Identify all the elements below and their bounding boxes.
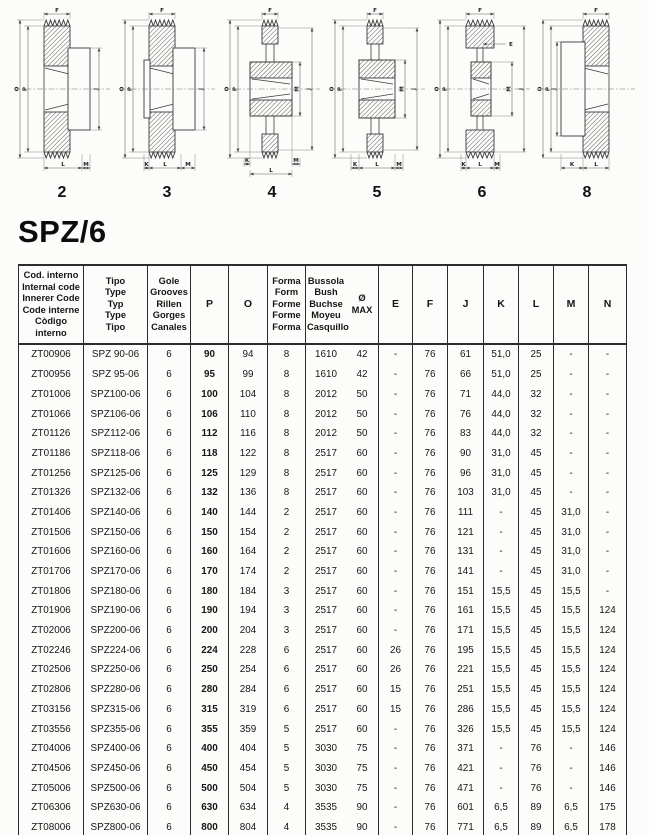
- table-cell: -: [379, 818, 413, 835]
- table-cell: 630: [191, 798, 229, 818]
- table-cell: 118: [191, 444, 229, 464]
- table-cell: 2517: [306, 444, 346, 464]
- table-cell: 6: [148, 483, 191, 503]
- table-cell: 15,5: [484, 699, 519, 719]
- table-cell: 15,5: [484, 680, 519, 700]
- table-cell: 76: [413, 798, 448, 818]
- table-cell: SPZ118-06: [84, 444, 148, 464]
- table-cell: -: [589, 522, 626, 542]
- table-cell: 76: [413, 503, 448, 523]
- table-cell: 6: [148, 798, 191, 818]
- table-cell: SPZ180-06: [84, 581, 148, 601]
- table-cell: -: [379, 345, 413, 365]
- table-cell: 71: [448, 384, 484, 404]
- table-cell: 2517: [306, 463, 346, 483]
- table-cell: 2517: [306, 601, 346, 621]
- table-row: ZT01706SPZ170-0661701742251760-76141-453…: [19, 562, 626, 582]
- table-cell: -: [379, 778, 413, 798]
- table-cell: 6: [148, 522, 191, 542]
- table-cell: -: [484, 503, 519, 523]
- table-cell: -: [589, 562, 626, 582]
- table-cell: 2517: [306, 503, 346, 523]
- pulley-cross-section-form-8: FOPJKL: [535, 4, 639, 180]
- table-cell: ZT01066: [19, 404, 84, 424]
- table-cell: 228: [229, 640, 268, 660]
- table-cell: 2517: [306, 581, 346, 601]
- table-cell: 124: [589, 719, 626, 739]
- table-cell: ZT02806: [19, 680, 84, 700]
- table-cell: 96: [448, 463, 484, 483]
- table-row: ZT01066SPZ106-0661061108201250-767644,03…: [19, 404, 626, 424]
- table-cell: ZT04506: [19, 759, 84, 779]
- table-cell: -: [484, 778, 519, 798]
- svg-text:L: L: [269, 168, 273, 174]
- table-cell: 254: [229, 660, 268, 680]
- column-header: F: [413, 266, 448, 345]
- table-cell: -: [379, 365, 413, 385]
- table-cell: 132: [191, 483, 229, 503]
- table-cell: 60: [346, 522, 379, 542]
- table-cell: 112: [191, 424, 229, 444]
- table-cell: -: [379, 503, 413, 523]
- table-cell: 6: [148, 345, 191, 365]
- svg-text:M: M: [185, 162, 191, 168]
- table-cell: 6: [148, 424, 191, 444]
- table-cell: 76: [413, 680, 448, 700]
- table-cell: 76: [413, 522, 448, 542]
- table-cell: SPZ150-06: [84, 522, 148, 542]
- table-cell: 3: [268, 621, 306, 641]
- table-cell: 31,0: [554, 542, 589, 562]
- table-row: ZT03556SPZ355-0663553595251760-7632615,5…: [19, 719, 626, 739]
- table-cell: 76: [413, 759, 448, 779]
- table-cell: SPZ800-06: [84, 818, 148, 835]
- table-cell: -: [589, 424, 626, 444]
- form-number-label: 5: [325, 184, 429, 202]
- table-cell: -: [589, 483, 626, 503]
- table-cell: SPZ250-06: [84, 660, 148, 680]
- table-cell: 60: [346, 503, 379, 523]
- table-cell: 6: [148, 680, 191, 700]
- table-cell: ZT01256: [19, 463, 84, 483]
- table-cell: 76: [413, 365, 448, 385]
- table-cell: 44,0: [484, 424, 519, 444]
- spec-table: Cod. interno Internal code Innerer Code …: [18, 264, 627, 835]
- table-cell: ZT01126: [19, 424, 84, 444]
- table-cell: 76: [413, 424, 448, 444]
- column-header: Gole Grooves Rillen Gorges Canales: [148, 266, 191, 345]
- table-row: ZT01906SPZ190-0661901943251760-7616115,5…: [19, 601, 626, 621]
- table-cell: 400: [191, 739, 229, 759]
- table-cell: 76: [413, 384, 448, 404]
- table-cell: 144: [229, 503, 268, 523]
- table-cell: 106: [191, 404, 229, 424]
- table-cell: 454: [229, 759, 268, 779]
- table-cell: 110: [229, 404, 268, 424]
- table-cell: 129: [229, 463, 268, 483]
- table-cell: ZT03556: [19, 719, 84, 739]
- table-cell: 6,5: [484, 818, 519, 835]
- table-cell: 60: [346, 444, 379, 464]
- table-cell: 6: [148, 404, 191, 424]
- table-cell: 45: [519, 719, 554, 739]
- table-cell: ZT06306: [19, 798, 84, 818]
- table-cell: 45: [519, 463, 554, 483]
- table-cell: 355: [191, 719, 229, 739]
- table-cell: -: [379, 542, 413, 562]
- table-cell: 5: [268, 759, 306, 779]
- table-cell: 4: [268, 818, 306, 835]
- table-row: ZT01186SPZ118-0661181228251760-769031,04…: [19, 444, 626, 464]
- column-header: J: [448, 266, 484, 345]
- table-cell: 421: [448, 759, 484, 779]
- table-cell: 6,5: [484, 798, 519, 818]
- table-cell: 8: [268, 483, 306, 503]
- pulley-cross-section-form-4: FOPMJKML: [220, 4, 324, 180]
- table-cell: 42: [346, 345, 379, 365]
- table-cell: 151: [448, 581, 484, 601]
- table-cell: 3030: [306, 759, 346, 779]
- table-cell: 6: [148, 699, 191, 719]
- table-cell: 90: [346, 818, 379, 835]
- table-cell: 42: [346, 365, 379, 385]
- table-cell: 15,5: [484, 621, 519, 641]
- svg-text:M: M: [293, 158, 299, 164]
- table-cell: 25: [519, 345, 554, 365]
- column-header: M: [554, 266, 589, 345]
- table-cell: -: [379, 483, 413, 503]
- column-header: Bussola Bush Buchse Moyeu Casquillo: [306, 266, 346, 345]
- table-cell: 76: [413, 601, 448, 621]
- table-cell: 6: [268, 640, 306, 660]
- table-row: ZT01006SPZ100-0661001048201250-767144,03…: [19, 384, 626, 404]
- table-cell: SPZ 90-06: [84, 345, 148, 365]
- table-cell: 124: [589, 680, 626, 700]
- table-cell: 6: [148, 621, 191, 641]
- table-cell: -: [379, 562, 413, 582]
- svg-text:F: F: [55, 8, 59, 14]
- table-cell: 75: [346, 759, 379, 779]
- table-cell: 1610: [306, 365, 346, 385]
- table-cell: 44,0: [484, 384, 519, 404]
- table-cell: 184: [229, 581, 268, 601]
- table-cell: 2: [268, 542, 306, 562]
- table-cell: 250: [191, 660, 229, 680]
- table-cell: 3030: [306, 739, 346, 759]
- table-cell: 2517: [306, 562, 346, 582]
- column-header: O: [229, 266, 268, 345]
- table-cell: 15,5: [484, 601, 519, 621]
- table-cell: -: [589, 581, 626, 601]
- pulley-form-diagram: FOPMJKLM5: [325, 4, 429, 202]
- svg-text:M: M: [396, 162, 402, 168]
- table-cell: 6: [148, 562, 191, 582]
- pulley-form-diagram-strip: FOPJLM2FOPJKLM3FOPMJKML4FOPMJKLM5FOPEMJK…: [0, 0, 649, 202]
- table-cell: SPZ315-06: [84, 699, 148, 719]
- table-cell: 76: [413, 463, 448, 483]
- table-cell: 8: [268, 384, 306, 404]
- table-cell: 90: [346, 798, 379, 818]
- pulley-form-diagram: FOPJLM2: [10, 4, 114, 202]
- svg-text:K: K: [570, 162, 575, 168]
- table-row: ZT01326SPZ132-0661321368251760-7610331,0…: [19, 483, 626, 503]
- table-cell: 450: [191, 759, 229, 779]
- table-cell: 32: [519, 424, 554, 444]
- table-row: ZT01506SPZ150-0661501542251760-76121-453…: [19, 522, 626, 542]
- table-cell: 15,5: [484, 640, 519, 660]
- table-cell: -: [589, 503, 626, 523]
- table-cell: 2517: [306, 680, 346, 700]
- table-cell: -: [554, 483, 589, 503]
- svg-text:L: L: [375, 162, 379, 168]
- table-cell: 2: [268, 522, 306, 542]
- table-cell: 60: [346, 463, 379, 483]
- table-row: ZT02506SPZ250-0662502546251760267622115,…: [19, 660, 626, 680]
- svg-text:K: K: [144, 162, 149, 168]
- table-cell: 75: [346, 739, 379, 759]
- table-row: ZT03156SPZ315-0663153196251760157628615,…: [19, 699, 626, 719]
- table-cell: 61: [448, 345, 484, 365]
- table-cell: 32: [519, 384, 554, 404]
- table-cell: 124: [589, 621, 626, 641]
- table-cell: -: [379, 601, 413, 621]
- table-cell: ZT01606: [19, 542, 84, 562]
- table-cell: 60: [346, 640, 379, 660]
- table-cell: 26: [379, 640, 413, 660]
- table-row: ZT00906SPZ 90-06690948161042-766151,025-…: [19, 345, 626, 365]
- table-cell: 6: [148, 818, 191, 835]
- table-row: ZT02246SPZ224-0662242286251760267619515,…: [19, 640, 626, 660]
- table-cell: 76: [519, 739, 554, 759]
- table-cell: -: [589, 365, 626, 385]
- table-cell: SPZ224-06: [84, 640, 148, 660]
- table-cell: 111: [448, 503, 484, 523]
- table-cell: 76: [448, 404, 484, 424]
- table-cell: -: [554, 759, 589, 779]
- table-cell: 178: [589, 818, 626, 835]
- table-cell: -: [554, 404, 589, 424]
- table-cell: 2517: [306, 542, 346, 562]
- form-number-label: 8: [535, 184, 639, 202]
- table-cell: 771: [448, 818, 484, 835]
- table-cell: 284: [229, 680, 268, 700]
- svg-text:L: L: [61, 162, 65, 168]
- table-cell: 15,5: [554, 621, 589, 641]
- table-cell: 76: [413, 542, 448, 562]
- table-cell: 15: [379, 699, 413, 719]
- table-cell: 504: [229, 778, 268, 798]
- table-cell: 326: [448, 719, 484, 739]
- table-cell: 76: [413, 719, 448, 739]
- table-cell: 6: [148, 759, 191, 779]
- table-cell: 99: [229, 365, 268, 385]
- table-cell: ZT00906: [19, 345, 84, 365]
- column-header: L: [519, 266, 554, 345]
- column-header: Cod. interno Internal code Innerer Code …: [19, 266, 84, 345]
- table-cell: -: [484, 542, 519, 562]
- table-cell: 15,5: [484, 660, 519, 680]
- form-number-label: 2: [10, 184, 114, 202]
- table-cell: 76: [413, 404, 448, 424]
- table-cell: -: [589, 463, 626, 483]
- table-cell: 76: [519, 778, 554, 798]
- table-cell: 2517: [306, 660, 346, 680]
- table-cell: 4: [268, 798, 306, 818]
- table-cell: 32: [519, 404, 554, 424]
- table-cell: -: [379, 621, 413, 641]
- table-cell: 76: [413, 581, 448, 601]
- table-cell: 15,5: [484, 581, 519, 601]
- table-cell: 89: [519, 818, 554, 835]
- column-header: Forma Form Forme Forme Forma: [268, 266, 306, 345]
- table-cell: 180: [191, 581, 229, 601]
- table-cell: 2012: [306, 384, 346, 404]
- table-cell: 95: [191, 365, 229, 385]
- svg-text:K: K: [461, 162, 466, 168]
- table-cell: 6: [148, 739, 191, 759]
- table-cell: SPZ450-06: [84, 759, 148, 779]
- table-cell: 2012: [306, 424, 346, 444]
- table-cell: ZT01506: [19, 522, 84, 542]
- table-cell: 75: [346, 778, 379, 798]
- table-cell: -: [554, 424, 589, 444]
- table-cell: 175: [589, 798, 626, 818]
- table-cell: ZT00956: [19, 365, 84, 385]
- table-cell: 76: [413, 345, 448, 365]
- table-cell: -: [589, 384, 626, 404]
- table-cell: -: [379, 404, 413, 424]
- table-cell: 31,0: [484, 444, 519, 464]
- table-cell: ZT01186: [19, 444, 84, 464]
- table-cell: -: [554, 345, 589, 365]
- catalog-page: FOPJLM2FOPJKLM3FOPMJKML4FOPMJKLM5FOPEMJK…: [0, 0, 649, 835]
- pulley-cross-section-form-5: FOPMJKLM: [325, 4, 429, 180]
- table-cell: SPZ630-06: [84, 798, 148, 818]
- table-cell: 8: [268, 404, 306, 424]
- table-cell: -: [379, 444, 413, 464]
- table-cell: 76: [413, 640, 448, 660]
- pulley-form-diagram: FOPJKL8: [535, 4, 639, 202]
- column-header: P: [191, 266, 229, 345]
- table-cell: SPZ400-06: [84, 739, 148, 759]
- pulley-cross-section-form-2: FOPJLM: [10, 4, 114, 180]
- table-cell: -: [589, 542, 626, 562]
- table-cell: 8: [268, 345, 306, 365]
- svg-text:L: L: [163, 162, 167, 168]
- table-cell: ZT04006: [19, 739, 84, 759]
- table-cell: 89: [519, 798, 554, 818]
- table-row: ZT02806SPZ280-0662802846251760157625115,…: [19, 680, 626, 700]
- table-cell: 60: [346, 621, 379, 641]
- column-header: E: [379, 266, 413, 345]
- table-cell: -: [379, 581, 413, 601]
- svg-text:K: K: [353, 162, 358, 168]
- svg-text:J: J: [306, 88, 312, 91]
- table-cell: 60: [346, 699, 379, 719]
- form-number-label: 3: [115, 184, 219, 202]
- svg-text:J: J: [411, 88, 417, 91]
- svg-text:F: F: [594, 8, 598, 14]
- table-cell: 60: [346, 660, 379, 680]
- table-cell: -: [379, 424, 413, 444]
- table-cell: SPZ190-06: [84, 601, 148, 621]
- table-cell: 6: [148, 660, 191, 680]
- header-row: Cod. interno Internal code Innerer Code …: [19, 266, 626, 345]
- table-cell: 500: [191, 778, 229, 798]
- table-cell: 2: [268, 503, 306, 523]
- table-cell: 6: [268, 699, 306, 719]
- table-cell: -: [379, 798, 413, 818]
- table-cell: 146: [589, 759, 626, 779]
- table-cell: 83: [448, 424, 484, 444]
- page-title: SPZ/6: [18, 214, 649, 250]
- svg-text:F: F: [373, 8, 377, 14]
- table-cell: 45: [519, 522, 554, 542]
- table-cell: SPZ140-06: [84, 503, 148, 523]
- table-cell: 60: [346, 581, 379, 601]
- pulley-form-diagram: FOPJKLM3: [115, 4, 219, 202]
- table-cell: ZT02006: [19, 621, 84, 641]
- table-cell: 194: [229, 601, 268, 621]
- table-cell: -: [379, 463, 413, 483]
- table-cell: 15,5: [554, 640, 589, 660]
- table-cell: 8: [268, 365, 306, 385]
- table-cell: 90: [191, 345, 229, 365]
- table-cell: 45: [519, 444, 554, 464]
- table-row: ZT06306SPZ630-0666306344353590-766016,58…: [19, 798, 626, 818]
- column-header: K: [484, 266, 519, 345]
- table-cell: 2517: [306, 483, 346, 503]
- table-row: ZT05006SPZ500-0665005045303075-76471-76-…: [19, 778, 626, 798]
- table-cell: 2517: [306, 719, 346, 739]
- table-cell: SPZ132-06: [84, 483, 148, 503]
- table-cell: 140: [191, 503, 229, 523]
- table-cell: 124: [589, 699, 626, 719]
- table-cell: 15,5: [554, 601, 589, 621]
- table-cell: -: [379, 739, 413, 759]
- table-cell: 359: [229, 719, 268, 739]
- table-cell: 804: [229, 818, 268, 835]
- table-cell: ZT01806: [19, 581, 84, 601]
- table-cell: 5: [268, 778, 306, 798]
- table-cell: -: [554, 384, 589, 404]
- pulley-cross-section-form-6: FOPEMJKLM: [430, 4, 534, 180]
- table-cell: 15,5: [554, 581, 589, 601]
- table-cell: 45: [519, 562, 554, 582]
- table-cell: 221: [448, 660, 484, 680]
- table-cell: 76: [413, 739, 448, 759]
- table-cell: 800: [191, 818, 229, 835]
- table-cell: SPZ355-06: [84, 719, 148, 739]
- table-cell: SPZ280-06: [84, 680, 148, 700]
- table-cell: 5: [268, 719, 306, 739]
- table-cell: 44,0: [484, 404, 519, 424]
- column-header: N: [589, 266, 626, 345]
- table-cell: ZT03156: [19, 699, 84, 719]
- table-cell: 76: [413, 660, 448, 680]
- table-cell: ZT01006: [19, 384, 84, 404]
- table-cell: 15,5: [554, 719, 589, 739]
- table-cell: 103: [448, 483, 484, 503]
- table-cell: 45: [519, 542, 554, 562]
- table-cell: 6: [148, 601, 191, 621]
- table-cell: 45: [519, 699, 554, 719]
- table-cell: 124: [589, 640, 626, 660]
- table-cell: 116: [229, 424, 268, 444]
- table-cell: 315: [191, 699, 229, 719]
- table-cell: 2012: [306, 404, 346, 424]
- table-row: ZT08006SPZ800-0668008044353590-767716,58…: [19, 818, 626, 835]
